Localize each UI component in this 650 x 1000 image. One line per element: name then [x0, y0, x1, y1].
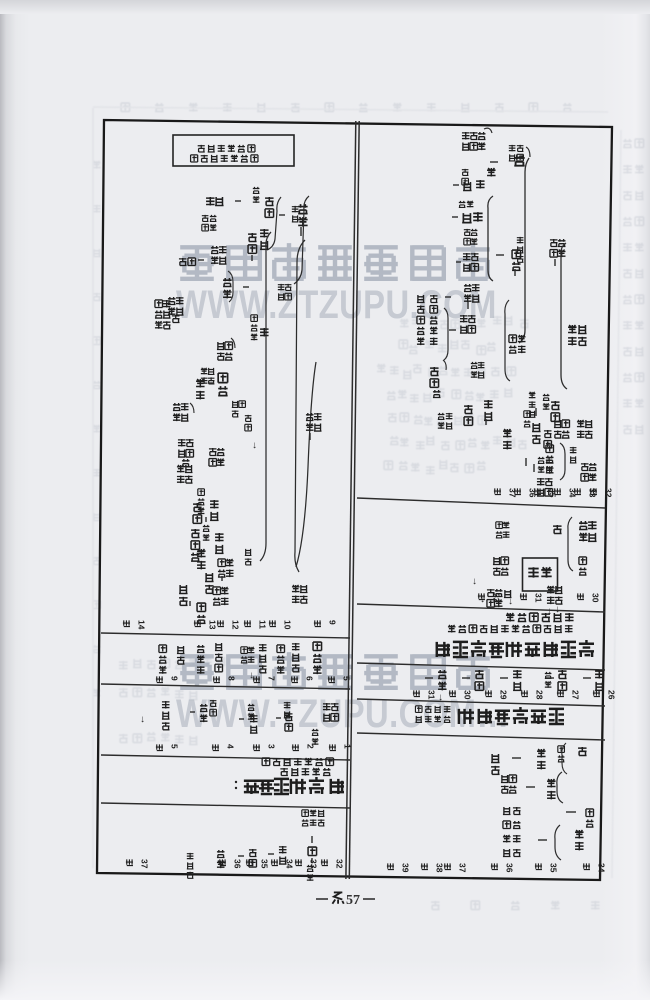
svg-text:5: 5 [342, 676, 352, 681]
svg-text:6: 6 [305, 676, 315, 681]
svg-text:36: 36 [233, 859, 243, 869]
svg-text:14: 14 [137, 620, 147, 630]
svg-text:↓: ↓ [438, 692, 443, 703]
svg-text:5: 5 [170, 744, 180, 749]
svg-text:10: 10 [283, 620, 293, 630]
svg-text:4: 4 [226, 744, 236, 749]
svg-text:35: 35 [549, 863, 559, 873]
svg-text:1: 1 [343, 744, 353, 749]
svg-text:34: 34 [597, 863, 607, 873]
svg-text:↓: ↓ [140, 714, 145, 725]
svg-text:9: 9 [170, 676, 180, 681]
svg-text:7: 7 [267, 676, 277, 681]
svg-text:39: 39 [401, 863, 411, 873]
svg-text:32: 32 [492, 593, 502, 603]
svg-text:30: 30 [591, 593, 601, 603]
svg-text:57: 57 [346, 893, 360, 908]
svg-text:31: 31 [427, 690, 437, 700]
svg-text:↓: ↓ [555, 604, 560, 615]
svg-text:34: 34 [568, 488, 578, 498]
svg-text:WWW.ZTZUPU.COM: WWW.ZTZUPU.COM [176, 282, 497, 327]
svg-text:31: 31 [534, 593, 544, 603]
svg-text:9: 9 [328, 620, 338, 625]
svg-text:↓: ↓ [472, 576, 477, 587]
svg-text:29: 29 [499, 690, 509, 700]
svg-text:↓: ↓ [252, 440, 257, 451]
svg-text:38: 38 [435, 863, 445, 873]
svg-text:37: 37 [458, 863, 468, 873]
svg-text:11: 11 [258, 620, 268, 629]
svg-text:12: 12 [231, 620, 241, 630]
svg-text:36: 36 [528, 488, 538, 498]
svg-text:32: 32 [335, 859, 345, 869]
svg-text:33: 33 [309, 859, 319, 869]
svg-text:37: 37 [508, 488, 518, 498]
svg-text:33: 33 [588, 488, 598, 498]
svg-text:3: 3 [267, 744, 277, 749]
svg-text:36: 36 [505, 863, 515, 873]
svg-text:32: 32 [604, 488, 614, 498]
svg-text:27: 27 [571, 690, 581, 700]
svg-text:35: 35 [260, 859, 270, 869]
svg-text:8: 8 [227, 676, 237, 681]
svg-text:30: 30 [463, 690, 473, 700]
svg-text:37: 37 [140, 859, 150, 869]
svg-text:↓: ↓ [547, 606, 552, 617]
svg-text:↓: ↓ [508, 596, 513, 607]
svg-text:34: 34 [285, 859, 295, 869]
svg-text:26: 26 [607, 690, 617, 700]
svg-text:13: 13 [208, 620, 218, 630]
svg-text:2: 2 [306, 744, 316, 749]
svg-text:28: 28 [535, 690, 545, 700]
